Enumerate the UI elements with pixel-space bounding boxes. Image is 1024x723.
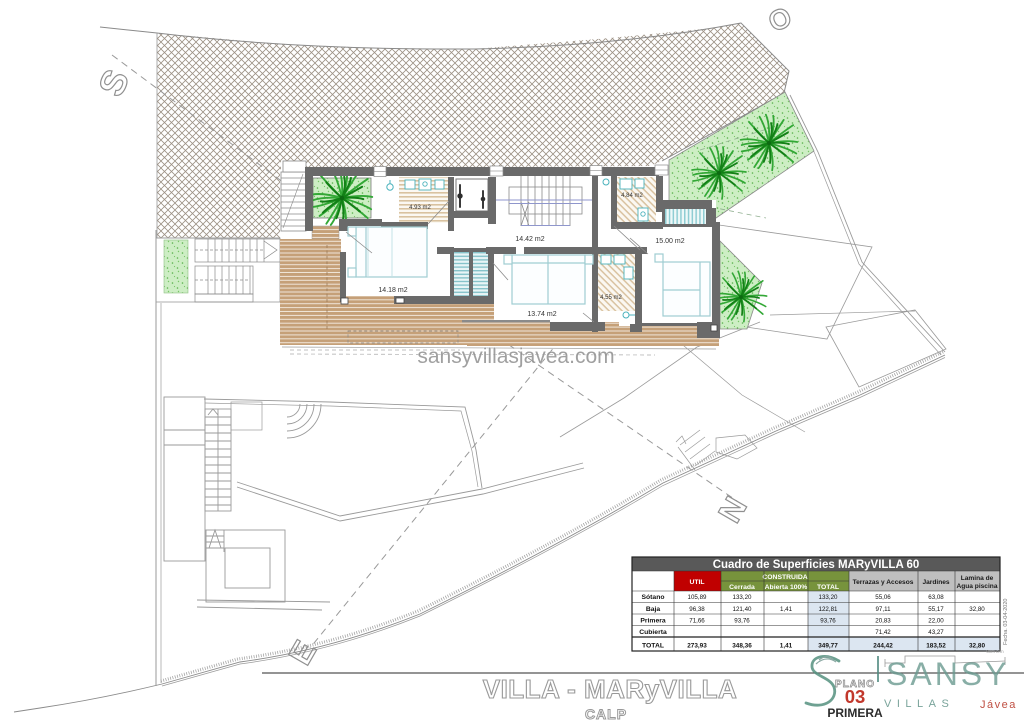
svg-text:VILLAS: VILLAS bbox=[884, 698, 954, 710]
svg-text:sansyvillasjavea.com: sansyvillasjavea.com bbox=[417, 345, 614, 368]
svg-text:32,80: 32,80 bbox=[969, 606, 985, 613]
svg-text:96,38: 96,38 bbox=[689, 606, 705, 613]
svg-text:133,20: 133,20 bbox=[819, 594, 838, 601]
svg-text:14.42 m2: 14.42 m2 bbox=[515, 236, 544, 243]
svg-text:43,27: 43,27 bbox=[928, 629, 944, 636]
svg-text:93,76: 93,76 bbox=[820, 618, 836, 625]
svg-text:TOTAL: TOTAL bbox=[642, 643, 664, 650]
svg-text:122,81: 122,81 bbox=[819, 606, 838, 613]
svg-text:121,40: 121,40 bbox=[733, 606, 752, 613]
svg-text:Primera: Primera bbox=[640, 618, 666, 625]
svg-text:71,66: 71,66 bbox=[689, 618, 705, 625]
svg-text:63,08: 63,08 bbox=[928, 594, 944, 601]
svg-text:Baja: Baja bbox=[646, 606, 661, 613]
svg-text:Jardines: Jardines bbox=[922, 579, 949, 586]
svg-text:1,41: 1,41 bbox=[780, 606, 793, 613]
svg-text:15.00 m2: 15.00 m2 bbox=[655, 238, 684, 245]
svg-text:VILLA - MARyVILLA: VILLA - MARyVILLA bbox=[483, 674, 738, 704]
svg-text:SANSY: SANSY bbox=[886, 656, 1009, 692]
svg-text:Fecha. 03-04-2020: Fecha. 03-04-2020 bbox=[1003, 599, 1009, 645]
svg-text:4.93 m2: 4.93 m2 bbox=[409, 205, 431, 211]
svg-text:Lamina de: Lamina de bbox=[961, 575, 994, 582]
svg-text:20,83: 20,83 bbox=[875, 618, 891, 625]
svg-text:4.55 m2: 4.55 m2 bbox=[600, 295, 622, 301]
svg-text:273,93: 273,93 bbox=[687, 643, 707, 650]
svg-text:105,89: 105,89 bbox=[688, 594, 707, 601]
svg-text:349,77: 349,77 bbox=[818, 643, 838, 650]
svg-text:Terrazas y Accesos: Terrazas y Accesos bbox=[853, 579, 914, 586]
svg-text:55,17: 55,17 bbox=[928, 606, 944, 613]
svg-text:97,11: 97,11 bbox=[875, 606, 891, 613]
svg-text:CONSTRUIDA: CONSTRUIDA bbox=[762, 574, 807, 581]
svg-text:71,42: 71,42 bbox=[875, 629, 891, 636]
svg-text:TOTAL: TOTAL bbox=[817, 584, 839, 591]
svg-text:Jávea: Jávea bbox=[980, 699, 1017, 711]
svg-text:Cerrada: Cerrada bbox=[729, 584, 755, 591]
svg-text:Abierta 100%: Abierta 100% bbox=[765, 584, 808, 591]
svg-text:Sótano: Sótano bbox=[641, 594, 664, 601]
svg-text:0cm e/m: 0cm e/m bbox=[986, 649, 1004, 654]
svg-text:55,06: 55,06 bbox=[875, 594, 891, 601]
svg-text:Agua piscina: Agua piscina bbox=[956, 583, 997, 590]
svg-text:UTIL: UTIL bbox=[689, 579, 704, 586]
svg-text:13.74 m2: 13.74 m2 bbox=[527, 311, 556, 318]
svg-text:Cuadro de Superficies MARyVILL: Cuadro de Superficies MARyVILLA 60 bbox=[713, 559, 920, 571]
svg-text:PRIMERA: PRIMERA bbox=[827, 706, 883, 720]
svg-text:183,52: 183,52 bbox=[926, 643, 946, 650]
svg-text:244,42: 244,42 bbox=[873, 643, 893, 650]
svg-text:93,76: 93,76 bbox=[734, 618, 750, 625]
svg-text:348,36: 348,36 bbox=[732, 643, 752, 650]
svg-text:133,20: 133,20 bbox=[733, 594, 752, 601]
svg-text:22,00: 22,00 bbox=[928, 618, 944, 625]
svg-text:32,80: 32,80 bbox=[969, 643, 985, 650]
svg-text:Cubierta: Cubierta bbox=[639, 629, 667, 636]
svg-text:03: 03 bbox=[845, 686, 866, 707]
svg-text:14.18 m2: 14.18 m2 bbox=[378, 287, 407, 294]
svg-text:4.84 m2: 4.84 m2 bbox=[621, 193, 643, 199]
svg-text:CALP: CALP bbox=[585, 706, 627, 722]
svg-text:1,41: 1,41 bbox=[780, 643, 793, 650]
